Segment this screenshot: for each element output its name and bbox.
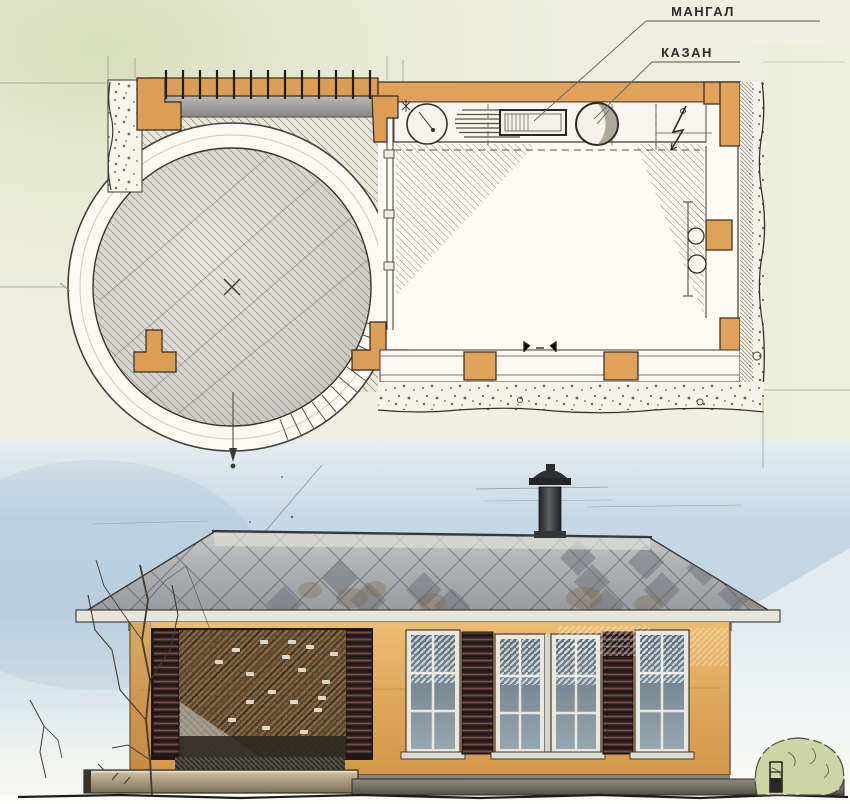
- window-1: [401, 630, 465, 759]
- window-mullion: [545, 634, 551, 754]
- window-band: [401, 626, 728, 759]
- wall-fixture-circle: [688, 228, 704, 244]
- window-sill: [491, 752, 605, 759]
- kitchen-counter: [394, 100, 712, 150]
- terrace-platform-edge: [84, 770, 358, 793]
- door-shutter-right: [346, 630, 372, 757]
- reflection-spill: [558, 626, 650, 656]
- south-pier: [604, 352, 638, 380]
- window-sill: [401, 752, 465, 759]
- reflection-spill: [690, 628, 728, 666]
- pergola-ledger: [150, 78, 378, 96]
- architectural-sketch-page: МАНГАЛ КАЗАН: [0, 0, 850, 804]
- door-shutter-left: [153, 630, 179, 757]
- mangal-label: МАНГАЛ: [671, 4, 735, 19]
- kazan-symbol: [576, 103, 618, 145]
- window-sill: [630, 752, 694, 759]
- window-shutter-pier-1: [462, 632, 493, 754]
- chimney-cap-plate: [529, 478, 571, 485]
- plan-east-pier: [706, 220, 732, 250]
- garage-door-assembly: [151, 628, 373, 774]
- window-2: [495, 634, 545, 754]
- window-reflection: [411, 635, 455, 683]
- eave-fascia: [76, 610, 780, 622]
- chimney-stack: [539, 487, 561, 535]
- sketch-canvas: МАНГАЛ КАЗАН: [0, 0, 850, 804]
- door-bottom-track: [179, 736, 346, 757]
- wooden-door-panel: [179, 630, 346, 757]
- mangal-symbol: [500, 110, 566, 135]
- window-reflection: [500, 639, 540, 685]
- wall-fixture-circle: [688, 255, 706, 273]
- south-pier: [464, 352, 496, 380]
- kazan-label: КАЗАН: [661, 45, 713, 60]
